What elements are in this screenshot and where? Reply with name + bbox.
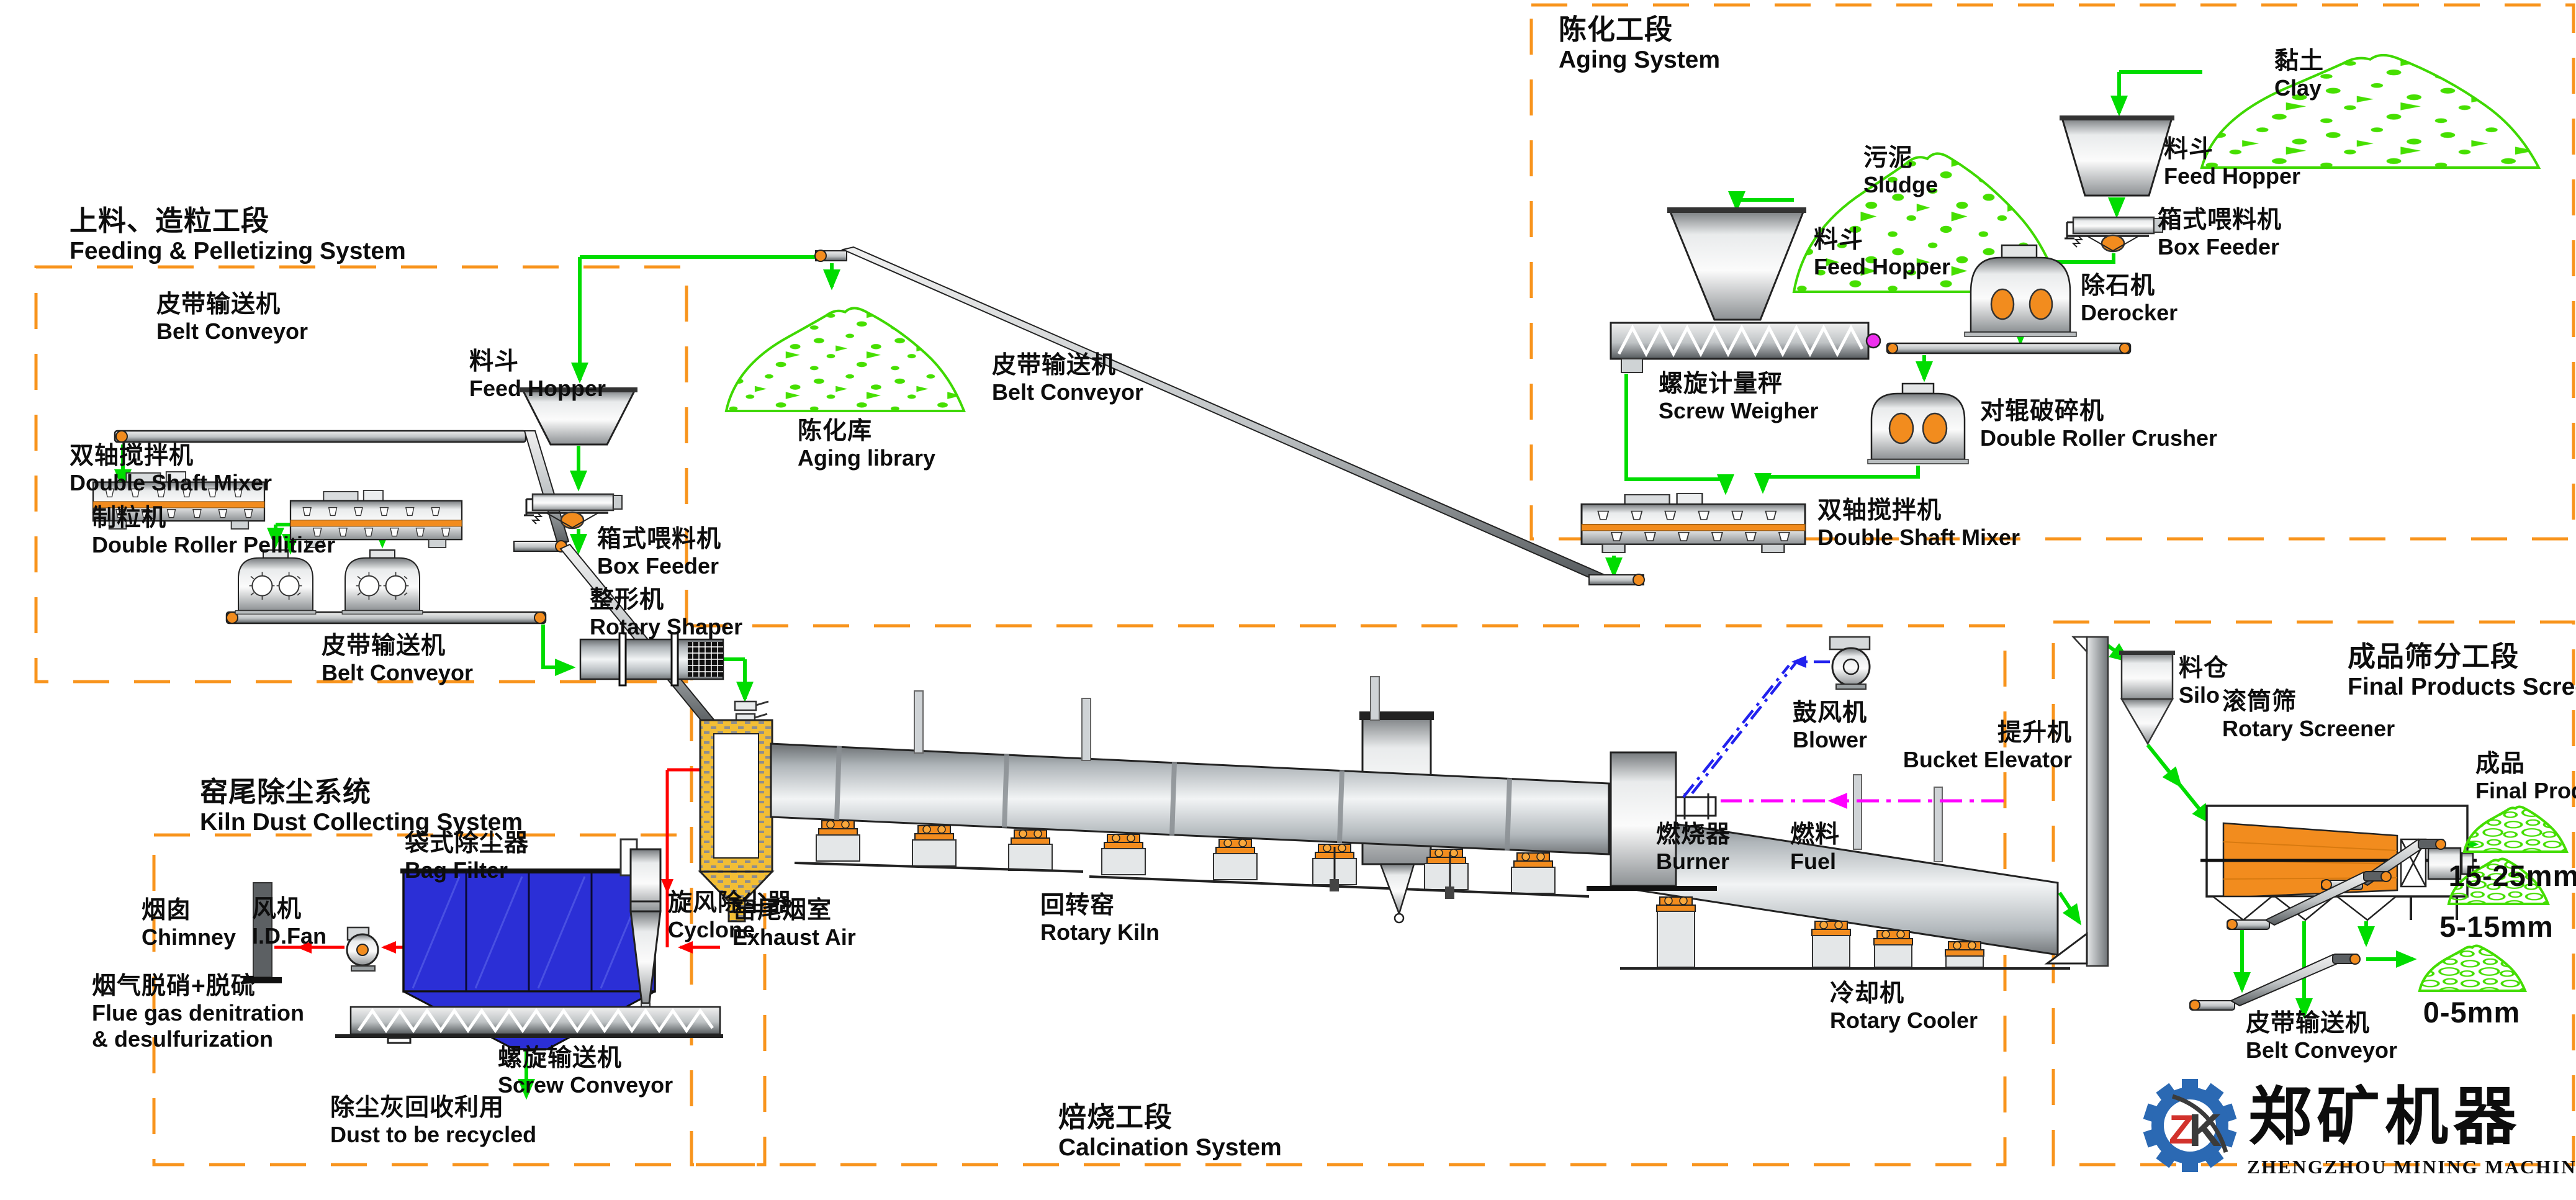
blower-air-lines xyxy=(1683,661,1830,797)
feeding-machines xyxy=(93,387,776,785)
logo-monogram-k: K xyxy=(2189,1104,2222,1156)
kiln-masts xyxy=(914,677,1379,760)
aging-library-pile xyxy=(726,308,964,411)
pelletizer-2-icon xyxy=(342,550,423,614)
blower-icon xyxy=(1830,637,1870,689)
exhaust-chamber-icon xyxy=(700,720,772,921)
burner-pipe xyxy=(1676,797,1716,816)
pile-15-25 xyxy=(2464,807,2567,852)
feed-hopper-3-icon xyxy=(1667,207,1806,320)
rotary-kiln-body xyxy=(771,744,1609,854)
box-feeder-1-icon xyxy=(524,494,622,528)
company-logo: Z K xyxy=(2143,1079,2237,1172)
double-shaft-mixer-2-icon xyxy=(290,490,462,548)
feed-hopper-2-icon xyxy=(2060,115,2174,196)
silo-icon xyxy=(2119,651,2175,744)
double-shaft-mixer-3-icon xyxy=(1582,494,1805,553)
pelletizer-1-icon xyxy=(235,550,316,614)
double-shaft-mixer-1-icon xyxy=(93,472,264,529)
feed-hopper-1-icon xyxy=(520,387,637,444)
cooler-masts xyxy=(1853,775,1942,862)
logo-gear-icon: Z K xyxy=(2143,1079,2237,1172)
belt-conveyor-middle-graphic xyxy=(815,247,1644,585)
screw-weigher-icon xyxy=(1611,323,1880,372)
calcination xyxy=(700,637,2108,968)
process-flow-diagram: Z K 上料、造粒工段Feeding & Pelletizing System陈… xyxy=(0,0,2576,1200)
rotary-screener-icon xyxy=(2200,806,2477,920)
double-roller-crusher-icon xyxy=(1868,384,1968,464)
derocker-discharge-belt xyxy=(1887,343,2130,353)
belt-conveyors xyxy=(115,247,2130,728)
dust-collecting xyxy=(243,770,723,1049)
kiln-feed-belt xyxy=(561,544,716,728)
product-belt-0-5 xyxy=(2190,954,2360,1010)
screw-conveyor-icon xyxy=(335,1007,723,1043)
screening xyxy=(2119,651,2567,1010)
id-fan-icon xyxy=(347,927,378,971)
chimney-icon xyxy=(243,883,282,983)
rotary-shaper-icon xyxy=(580,633,723,685)
diagram-graphics: Z K xyxy=(0,0,2576,1200)
box-feeder-2-icon xyxy=(2065,217,2163,251)
pile-0-5 xyxy=(2420,946,2525,991)
clay-pile xyxy=(2202,55,2539,168)
